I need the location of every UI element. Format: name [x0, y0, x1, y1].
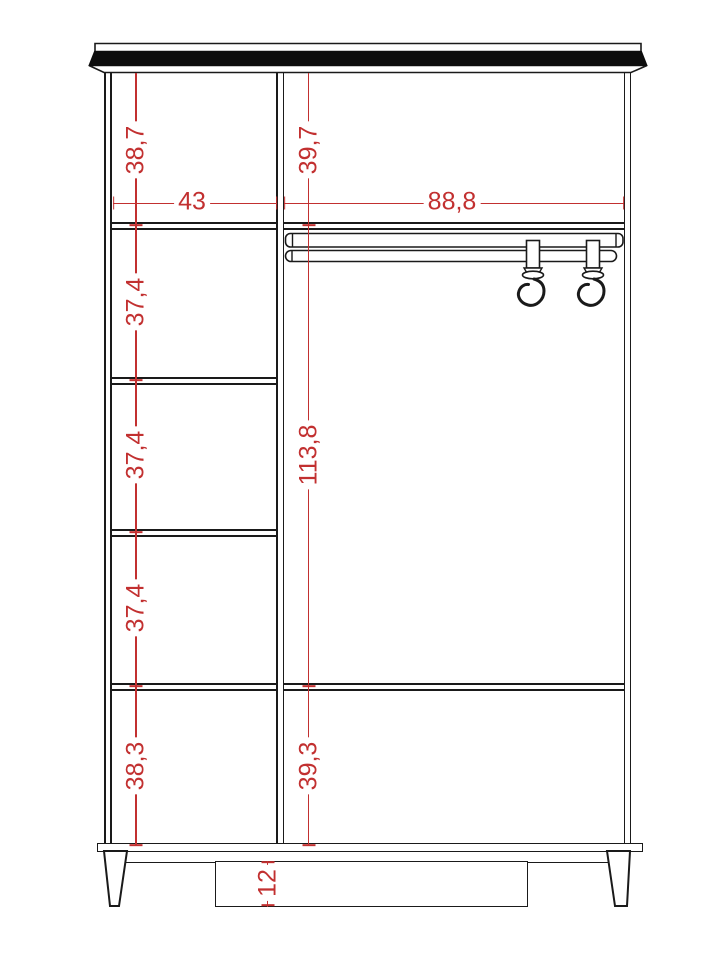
dimension-label: 43 [174, 188, 210, 217]
hook-clamp [524, 268, 542, 273]
dimension-tick [130, 531, 143, 533]
dimension-tick [302, 844, 315, 846]
dimension-label: 12 [254, 865, 283, 901]
dimension-label: 113,8 [294, 421, 323, 490]
dimension-tick [261, 904, 274, 906]
hook-clamp [584, 268, 602, 273]
dimension-label: 37,4 [122, 580, 151, 637]
wardrobe-technical-drawing: 38,7 37,4 37,4 37,4 38,3 39,7 113,8 39,3… [0, 0, 720, 960]
dimension-tick [113, 197, 115, 210]
hook-curve [578, 279, 604, 305]
dimension-label: 38,3 [122, 738, 151, 795]
hook-ferrule [523, 271, 544, 279]
dimension-tick [276, 197, 278, 210]
dimension-tick [302, 224, 315, 226]
dimension-label: 37,4 [122, 274, 151, 331]
divider-left-line [276, 72, 278, 843]
shelf-edge-line [284, 683, 624, 685]
right-wall-outer-line [630, 72, 632, 843]
dimension-tick [261, 861, 274, 863]
dimension-label: 38,7 [122, 122, 151, 179]
dimension-label: 37,4 [122, 427, 151, 484]
shelf-edge-line [284, 689, 624, 691]
rail-mounting-bar [286, 234, 624, 248]
dimension-tick [623, 197, 625, 210]
hook-curve [518, 279, 544, 305]
cornice-band [89, 52, 647, 66]
dimension-tick [130, 224, 143, 226]
dimension-tick [130, 685, 143, 687]
dimension-label: 39,3 [294, 738, 323, 795]
cornice-molding [89, 66, 647, 73]
divider-right-line [283, 72, 285, 843]
dimension-tick [284, 197, 286, 210]
dimension-tick [302, 685, 315, 687]
hook-ferrule [583, 271, 604, 279]
drawing-details-layer [0, 0, 720, 960]
hanger-hook [518, 241, 544, 306]
dimension-tick [130, 379, 143, 381]
dimension-label: 39,7 [294, 122, 323, 179]
left-wall-outer-line [104, 72, 106, 843]
rail-tube [286, 251, 617, 262]
right-wall-inner-line [624, 72, 626, 843]
shelf-edge-line [284, 228, 624, 230]
hanger-hook [578, 241, 604, 306]
shelf-edge-line [284, 222, 624, 224]
dimension-label: 88,8 [424, 188, 481, 217]
cornice-top-board [95, 44, 641, 52]
hook-strap [527, 241, 540, 269]
left-wall-inner-line [110, 72, 112, 843]
hook-strap [587, 241, 600, 269]
dimension-tick [130, 844, 143, 846]
